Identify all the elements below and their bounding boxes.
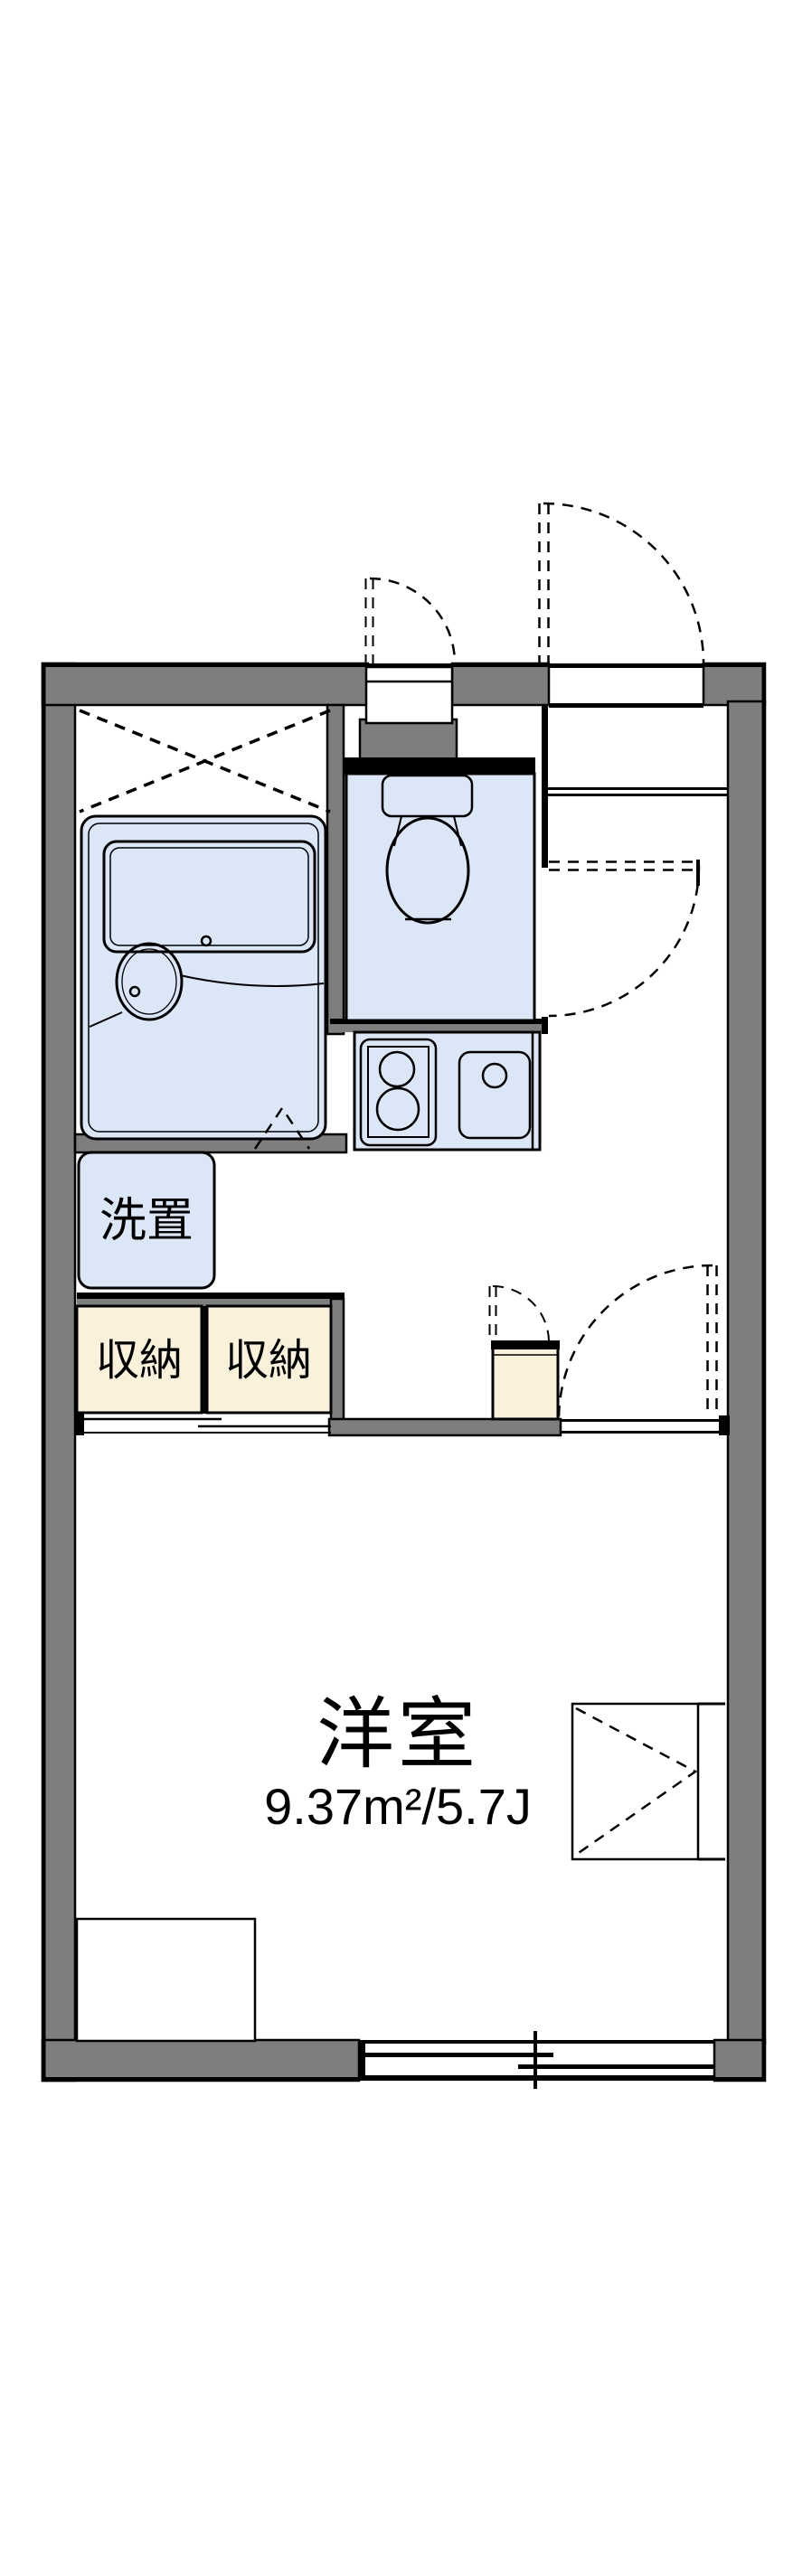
storage-north-line (77, 1293, 345, 1299)
hall-cabinet-top (491, 1340, 560, 1349)
floor-plan: 洗置 収納 収納 (0, 0, 812, 2576)
floor-plan-page: 洗置 収納 収納 (0, 0, 812, 2576)
room-north-wall (329, 1419, 561, 1435)
recess-frame (360, 719, 457, 759)
toilet-door-leaf (549, 862, 699, 870)
window-pane-upper (364, 2053, 553, 2057)
room-door-leaf (708, 1265, 717, 1417)
bottom-wall-left (42, 2040, 359, 2081)
entrance-step-line-1 (548, 787, 728, 790)
recess-door-arc (370, 578, 455, 663)
closet-door-stub (75, 1413, 84, 1435)
storage-closets: 収納 収納 (75, 1306, 331, 1435)
toilet-door-arc (549, 866, 699, 1016)
right-outer-wall (728, 701, 765, 2044)
window-mullion-tick (533, 2031, 537, 2089)
top-wall-left (42, 663, 368, 705)
entrance-opening-inner-line (549, 703, 703, 708)
recess-door-leaf (366, 578, 373, 663)
window-outer-line (364, 2075, 715, 2080)
room-area-label: 9.37m²/5.7J (264, 1778, 532, 1835)
cabinet-door-arc (493, 1286, 549, 1342)
kitchen (354, 1032, 540, 1150)
bath-unit (80, 710, 330, 1149)
bay-window-strip (698, 1704, 725, 1859)
window-left-cap (359, 2040, 365, 2081)
upper-closet-x (80, 710, 330, 812)
left-outer-wall (42, 663, 75, 2081)
hall-west-wall-upper (542, 705, 548, 868)
storage-right-label: 収納 (225, 1337, 312, 1385)
top-wall-mid (452, 663, 549, 705)
entrance-step-line-2 (548, 794, 728, 796)
hall-cabinet (491, 1340, 560, 1419)
room-door-stub (719, 1415, 730, 1435)
window-inner-line (364, 2040, 715, 2044)
cabinet-door-leaf (490, 1286, 496, 1342)
hall-west-wall-lower (542, 1017, 548, 1034)
entrance-door-leaf (540, 503, 549, 663)
window-pane-lower (518, 2064, 714, 2069)
entrance-door-arc (543, 503, 703, 663)
room-name-label: 洋室 (316, 1691, 479, 1778)
washer-label: 洗置 (99, 1195, 194, 1247)
room-door-arc (559, 1265, 713, 1419)
western-room: 洋室 9.37m²/5.7J (77, 1691, 725, 2041)
washer-space: 洗置 (79, 1152, 214, 1288)
bath-toilet-wall (327, 705, 344, 1034)
storage-left-label: 収納 (96, 1337, 183, 1385)
storage-east-wall (331, 1299, 344, 1425)
bottom-right-corner (714, 2040, 765, 2081)
room-door-threshold-2 (561, 1431, 719, 1434)
storage-divider (201, 1306, 208, 1413)
kitchen-counter (354, 1032, 540, 1150)
desk-box (77, 1919, 255, 2041)
wall-recess (366, 667, 452, 723)
top-wall-right-corner (703, 663, 765, 705)
room-door-threshold-1 (561, 1419, 719, 1422)
toilet-floor (346, 774, 534, 1020)
toilet-room (346, 774, 534, 1020)
